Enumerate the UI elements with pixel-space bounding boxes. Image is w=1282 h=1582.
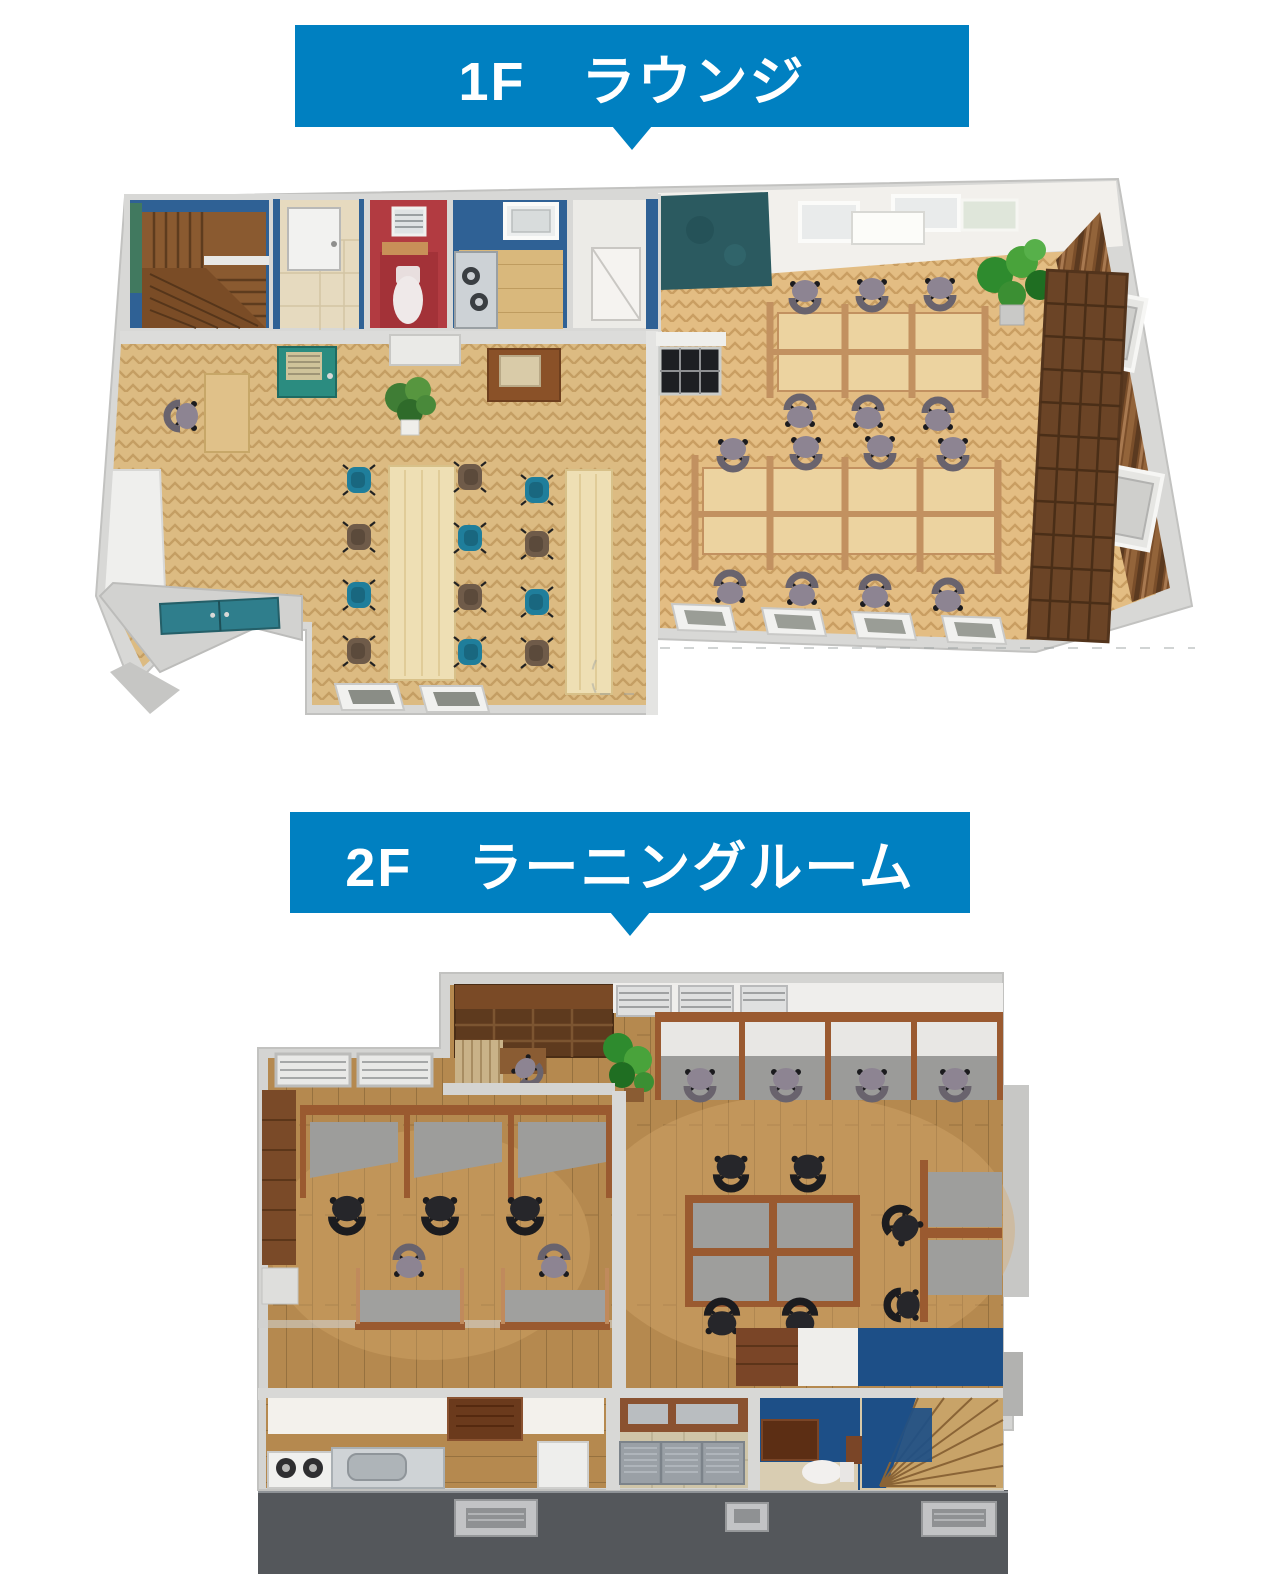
staircase-room — [127, 197, 272, 331]
bookshelf — [1028, 270, 1127, 642]
toilet-shelf — [382, 242, 428, 255]
window — [276, 1054, 350, 1086]
stove-counter — [455, 252, 497, 328]
stove — [268, 1452, 332, 1488]
floor1-banner: 1F ラウンジ — [295, 25, 969, 127]
floor1-plan — [96, 179, 1195, 715]
balcony-vent — [922, 1502, 996, 1536]
side-shelf — [262, 1090, 296, 1265]
sketch-lines — [592, 648, 1195, 700]
window-bay — [104, 470, 165, 592]
balcony-vent — [455, 1500, 537, 1536]
toilet — [393, 266, 423, 324]
floor1-banner-pointer — [612, 126, 652, 150]
balcony — [258, 1490, 1008, 1574]
floor2-plan-image — [0, 950, 1282, 1582]
cabinet — [262, 1268, 298, 1304]
page: 1F ラウンジ 2F ラーニングルーム — [0, 0, 1282, 1582]
stair-hall — [760, 1398, 1003, 1490]
serving-hatch — [656, 332, 726, 394]
back-band — [736, 1328, 1003, 1386]
window — [741, 986, 787, 1016]
window — [358, 1054, 432, 1086]
long-table — [566, 470, 612, 694]
toilet — [802, 1460, 842, 1484]
stairwell-blue-wall — [858, 1328, 1003, 1386]
locker-room — [620, 1398, 748, 1488]
bathroom — [272, 197, 367, 331]
staircase — [142, 212, 272, 328]
wall — [748, 1390, 760, 1490]
wood-door — [488, 349, 560, 401]
window — [679, 986, 733, 1016]
wall-cabinet — [390, 335, 460, 365]
window — [617, 986, 671, 1016]
cabinet — [620, 1398, 748, 1432]
window — [335, 684, 404, 710]
kitchen — [266, 1398, 606, 1488]
cart — [538, 1442, 588, 1488]
balcony-vent — [726, 1503, 768, 1531]
entrance-door — [160, 598, 279, 634]
wall — [443, 1083, 615, 1095]
stair-cabinet — [888, 1408, 932, 1462]
teal-counter — [660, 192, 772, 290]
window-carrels — [613, 983, 1003, 1100]
lockers — [620, 1442, 744, 1484]
carrel-row — [655, 1012, 1003, 1100]
toilet-door — [762, 1420, 818, 1460]
wall — [606, 1390, 620, 1490]
roof-flap — [1003, 1352, 1023, 1416]
window — [420, 686, 489, 712]
sink-counter — [332, 1448, 444, 1488]
floor2-banner: 2F ラーニングルーム — [290, 812, 970, 913]
long-table — [389, 466, 455, 680]
teal-door — [278, 347, 336, 397]
skylight-window — [505, 204, 557, 238]
window — [762, 608, 826, 636]
toilet-room — [760, 1398, 868, 1490]
window — [942, 616, 1006, 644]
floor2-plan — [258, 973, 1029, 1574]
winding-stairs — [862, 1398, 1003, 1488]
wall — [646, 331, 658, 715]
toilet-window — [393, 208, 425, 235]
bathroom-door — [288, 208, 340, 270]
kitchen-door — [448, 1398, 522, 1440]
window — [672, 604, 736, 632]
floor2-banner-label: 2F ラーニングルーム — [345, 823, 914, 902]
wall — [612, 1091, 626, 1391]
floor2-banner-pointer — [610, 912, 650, 936]
toilet-room — [367, 197, 450, 331]
kitchenette — [450, 197, 570, 331]
floor1-banner-label: 1F ラウンジ — [458, 37, 805, 116]
window — [852, 612, 916, 640]
closet — [570, 197, 658, 331]
